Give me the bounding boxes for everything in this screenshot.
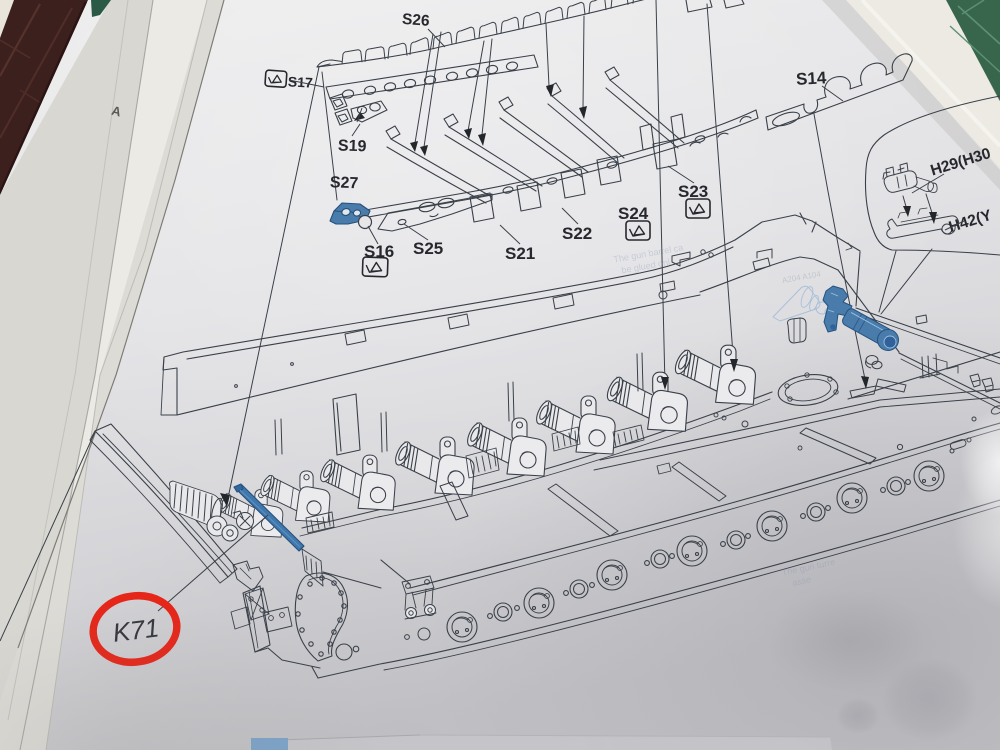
svg-text:S27: S27 xyxy=(330,174,359,192)
svg-text:S24: S24 xyxy=(618,204,649,223)
svg-text:S22: S22 xyxy=(562,224,592,243)
svg-text:S26: S26 xyxy=(401,11,430,30)
svg-text:S23: S23 xyxy=(678,182,708,201)
svg-text:S19: S19 xyxy=(338,137,367,155)
svg-text:S21: S21 xyxy=(505,244,535,263)
svg-text:S14: S14 xyxy=(796,68,828,89)
svg-text:S25: S25 xyxy=(413,239,443,258)
